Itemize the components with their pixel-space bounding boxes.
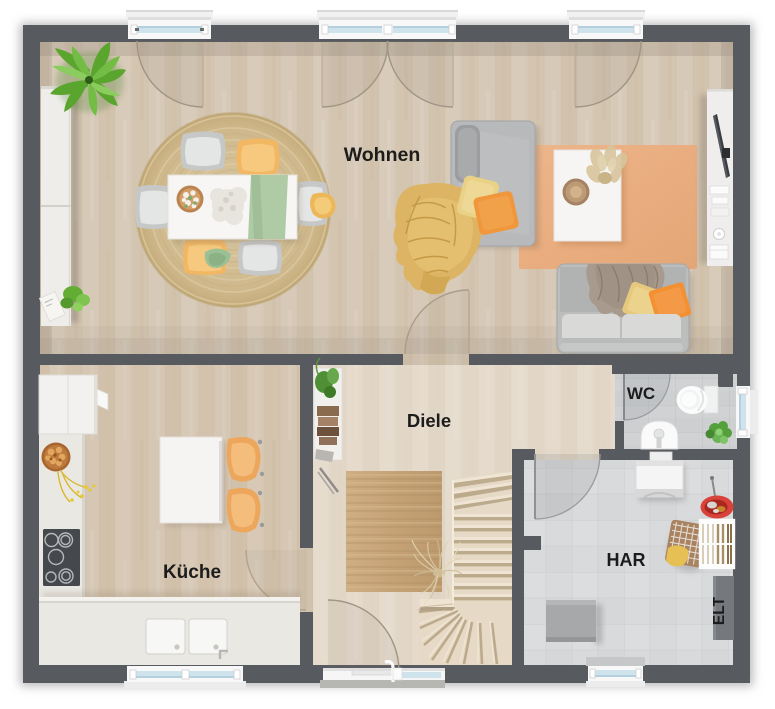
svg-text:HAR: HAR [607, 550, 646, 570]
svg-text:Diele: Diele [407, 410, 451, 431]
svg-text:ELT: ELT [711, 596, 728, 625]
svg-text:Küche: Küche [163, 562, 221, 583]
svg-text:WC: WC [627, 384, 655, 403]
svg-text:Wohnen: Wohnen [344, 144, 421, 166]
